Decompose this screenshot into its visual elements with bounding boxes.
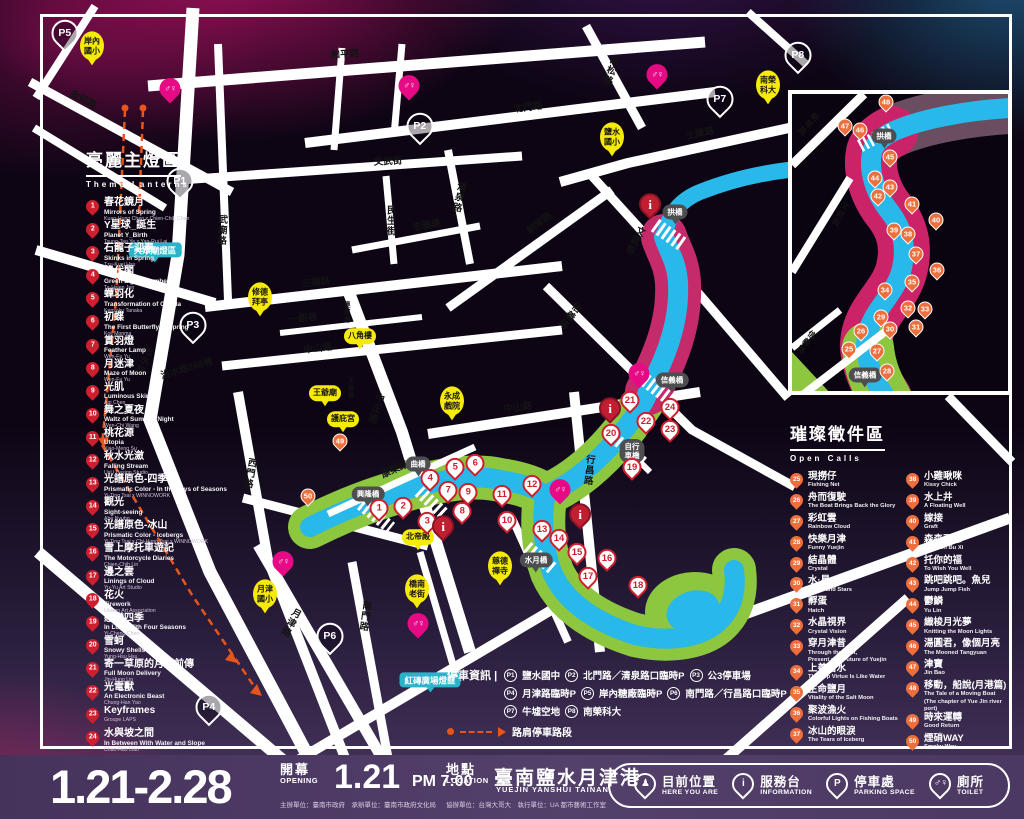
map-pin-lantern-17: 17: [579, 567, 598, 586]
parking-badge-P6: P6: [667, 687, 680, 700]
parking-badge-P7: P7: [504, 705, 517, 718]
theme-item-11: 11桃花源UtopiaXiao-Meng Su: [86, 429, 281, 452]
opencall-item-title-zh: 嫁接: [924, 514, 943, 524]
inset-pin-opencall-46: 46: [853, 123, 868, 138]
theme-item-title-zh: 水與坡之間: [104, 729, 205, 740]
theme-item-pin-icon: 15: [83, 521, 101, 539]
opencall-item-title-en: The Mooned Tangyuan: [924, 650, 1000, 657]
theme-item-title-zh: 石龍子迎春: [104, 244, 154, 255]
theme-item-5: 5蟬羽化Transformation of CicadaKensaku Tana…: [86, 290, 281, 313]
theme-item-title-zh: 光肌: [104, 383, 150, 394]
opencall-item-40: 40嫁接Graft: [906, 514, 1016, 535]
footer-bar: 1.21-2.28 開幕 OPENING 1.21 PM 7:00 地點 LOC…: [0, 755, 1024, 819]
legend-item-parking: P停車處PARKING SPACE: [826, 775, 915, 796]
opencall-item-41: 41森森不息Sen Sen Bu Xi: [906, 535, 1016, 556]
parking-badge-P1: P1: [504, 669, 517, 682]
theme-item-pin-icon: 6: [83, 313, 101, 331]
information-icon-2: i: [599, 397, 621, 419]
inset-pin-opencall-35: 35: [905, 275, 920, 290]
theme-item-title-en: Feather Lamp: [104, 347, 146, 354]
theme-item-pin-icon: 23: [83, 705, 101, 723]
map-pin-parking-P8: P8: [785, 42, 812, 69]
opencall-item-pin-icon: 37: [787, 725, 805, 743]
theme-item-title-en: Sight-seeing: [104, 509, 142, 516]
route-arrow-icon: [498, 727, 506, 737]
opencall-item-37: 37冰山的眼淚The Tears of Iceberg: [790, 727, 900, 748]
parking-location-P6: 南門路／行昌路口臨時P: [685, 686, 786, 700]
parking-badge-P8: P8: [565, 705, 578, 718]
opencall-item-45: 45織梭月光夢Knitting the Moon Lights: [906, 618, 1016, 639]
opencall-item-title-zh: 鬱鱗: [924, 597, 943, 607]
opencall-item-pin-icon: 45: [903, 617, 921, 635]
opencall-item-title-en: Funny Yuejin: [808, 545, 846, 552]
theme-item-title-en: Maze of Moon: [104, 370, 146, 377]
opencall-item-47: 47津寶Jin Bao: [906, 660, 1016, 681]
credits-organizers: 主辦單位：臺南市政府 承辦單位：臺南市政府文化局: [280, 799, 436, 809]
inset-pin-opencall-37: 37: [909, 247, 924, 262]
opencall-item-pin-icon: 50: [903, 732, 921, 750]
map-pin-opencall-50: 50: [301, 489, 316, 504]
theme-item-title-zh: 初蝶: [104, 313, 189, 324]
theme-item-pin-icon: 12: [83, 451, 101, 469]
street-label-王爺巷: 王爺巷: [346, 377, 353, 400]
street-label-文武街: 文武街: [374, 157, 403, 168]
opencall-item-title-en: Hatch: [808, 608, 827, 615]
inset-pin-opencall-36: 36: [930, 263, 945, 278]
opencall-item-title-zh: 托你的福: [924, 556, 972, 566]
opencall-item-title-en: The Boat Brings Back the Glory: [808, 503, 895, 510]
opencall-item-pin-icon: 27: [787, 512, 805, 530]
landmark-label-橋南老街: 橋南 老街: [405, 574, 429, 603]
theme-item-title-en: In Love With Four Seasons: [104, 624, 186, 631]
parking-info-lines: P1鹽水國中P2北門路／清泉路口臨時PP3公3停車場P4月津路臨時PP5岸內糖廠…: [504, 666, 787, 720]
theme-item-20: 20雪蚵Snowy ShellsYung-Hsu Hsu: [86, 637, 281, 660]
theme-item-title-en: Luminous Skin: [104, 393, 150, 400]
inset-bridge-label-信義橋: 信義橋: [849, 368, 882, 383]
opencall-item-title-zh: 上善若水: [808, 664, 885, 674]
theme-item-title-zh: 觀光: [104, 498, 142, 509]
opencall-item-pin-icon: 25: [787, 470, 805, 488]
theme-item-title-zh: 賞羽燈: [104, 337, 146, 348]
theme-item-pin-icon: 8: [83, 359, 101, 377]
bridge-label-信義橋: 信義橋: [656, 373, 689, 388]
legend-label-en: INFORMATION: [760, 789, 812, 796]
theme-item-title-en: Prismatic Color - Icebergs: [104, 532, 208, 539]
opencall-item-title-en: Rainbow Cloud: [808, 524, 850, 531]
parking-icon: P: [822, 768, 853, 799]
opencall-item-title-zh: 時來運轉: [924, 713, 962, 723]
open-calls-inset-map: 朝琴路文武街信義路2526272829303132333435363738394…: [788, 90, 1012, 395]
opencall-item-title-en: Water and Stars: [808, 587, 852, 594]
opencall-item-title-zh: 跳吧跳吧。魚兒: [924, 576, 991, 586]
theme-item-title-en: Skinks in Spring: [104, 255, 154, 262]
inset-pin-opencall-48: 48: [879, 95, 894, 110]
theme-item-pin-icon: 21: [83, 659, 101, 677]
legend-label-zh: 廁所: [957, 775, 984, 789]
theme-item-12: 12秋水光瀲Falling StreamUxU Design Studio: [86, 452, 281, 475]
opencall-item-34: 34上善若水The Top Virtue Is Like Water: [790, 664, 900, 685]
theme-item-pin-icon: 5: [83, 290, 101, 308]
opencall-item-title-en: Knitting the Moon Lights: [924, 629, 992, 636]
opencall-item-title-zh: 聚波漁火: [808, 706, 898, 716]
legend-item-toilet: ♂♀廁所TOILET: [929, 775, 984, 796]
opencall-item-pin-icon: 40: [903, 512, 921, 530]
map-pin-lantern-24: 24: [661, 398, 680, 417]
inset-pin-opencall-38: 38: [901, 227, 916, 242]
map-pin-lantern-12: 12: [523, 475, 542, 494]
information-icon-4: i: [432, 515, 454, 537]
map-pin-lantern-11: 11: [493, 485, 512, 504]
legend-label-en: PARKING SPACE: [854, 789, 915, 796]
bridge-label-拱橋: 拱橋: [663, 205, 688, 220]
opencall-item-pin-icon: 41: [903, 533, 921, 551]
theme-item-title-zh: 光譜原色-四季: [104, 475, 227, 486]
theme-item-title-en: The Motorcycle Diaries: [104, 555, 174, 562]
opencall-item-pin-icon: 46: [903, 637, 921, 655]
theme-item-pin-icon: 14: [83, 498, 101, 516]
theme-item-title-en: Mirrors of Spring: [104, 209, 189, 216]
theme-item-14: 14觀光Sight-seeingAbe Nyubo: [86, 498, 281, 521]
theme-item-title-zh: 舞之夏夜: [104, 406, 174, 417]
map-pin-lantern-9: 9: [459, 483, 478, 502]
theme-item-title-zh: 花火: [104, 591, 156, 602]
street-label-行昌路: 行昌路: [582, 454, 595, 486]
opencall-item-title-zh: 現撈仔: [808, 472, 840, 482]
theme-item-title-en: Planet Y_Birth: [104, 232, 167, 239]
theme-item-1: 1春花鏡月Mirrors of SpringKuan-Hung Chen x C…: [86, 198, 281, 221]
opencall-item-title-zh: 穿月津昔: [808, 639, 887, 649]
theme-item-title-en: Firework: [104, 601, 156, 608]
theme-item-title-en: An Electronic Beast: [104, 693, 164, 700]
map-pin-lantern-5: 5: [446, 458, 465, 477]
opencall-item-pin-icon: 38: [903, 470, 921, 488]
theme-item-title-en: Full Moon Delivery: [104, 670, 194, 677]
theme-item-pin-icon: 19: [83, 613, 101, 631]
map-pin-lantern-20: 20: [602, 424, 621, 443]
theme-item-23: 23KeyframesGroupe LAPS: [86, 706, 281, 729]
opencall-item-title-zh: 小雞啾咪: [924, 472, 962, 482]
opencall-item-30: 30水·星Water and Stars: [790, 576, 900, 597]
theme-item-title-zh: 秋水光瀲: [104, 452, 148, 463]
landmark-label-王爺廟: 王爺廟: [309, 385, 341, 401]
open-calls-title-zh: 璀璨徵件區: [790, 420, 885, 451]
parking-info-label: 停車資訊: [447, 670, 491, 682]
map-legend: ♟目前位置HERE YOU AREi服務台INFORMATIONP停車處PARK…: [608, 763, 1010, 808]
legend-label-zh: 停車處: [854, 775, 915, 789]
inset-pin-opencall-43: 43: [883, 180, 898, 195]
theme-item-15: 15光譜原色-冰山Prismatic Color - IcebergsYi-Ti…: [86, 521, 281, 544]
parking-location-P1: 鹽水國中: [522, 668, 560, 682]
theme-item-pin-icon: 7: [83, 336, 101, 354]
legend-label-en: HERE YOU ARE: [662, 789, 718, 796]
opencall-item-50: 50煙硝WAYSmoky Way: [906, 734, 1016, 755]
opencall-item-title-zh: 孵蛋: [808, 597, 827, 607]
opencall-item-pin-icon: 30: [787, 575, 805, 593]
opencall-item-title-en: Jump Jump Fish: [924, 587, 991, 594]
opencall-item-pin-icon: 36: [787, 704, 805, 722]
map-pin-lantern-19: 19: [623, 458, 642, 477]
landmark-label-南榮科大: 南榮 科大: [756, 70, 780, 99]
theme-item-title-zh: Keyframes: [104, 706, 155, 717]
opencall-item-48: 48移動，船說(月港篇)The Tale of a Moving Boat (T…: [906, 681, 1016, 713]
theme-item-21: 21寄一草原的月亮前傳Full Moon DeliveryJin-Hung Li…: [86, 660, 281, 683]
theme-item-pin-icon: 20: [83, 636, 101, 654]
opencall-item-35: 35生命鹽月Vitality of the Salt Moon: [790, 685, 900, 706]
opencall-item-title-en: The Tears of Iceberg: [808, 737, 864, 744]
parking-badge-P2: P2: [565, 669, 578, 682]
opencall-item-pin-icon: 42: [903, 554, 921, 572]
inset-bridge-label-拱橋: 拱橋: [872, 129, 897, 144]
route-dash-icon: [460, 731, 492, 733]
theme-item-2: 2Y星球_誕生Planet Y_BirthTsung-Tao Ye x Yan-…: [86, 221, 281, 244]
opencall-item-title-en: Sen Sen Bu Xi: [924, 545, 963, 552]
inset-pin-opencall-25: 25: [842, 342, 857, 357]
parking-location-P4: 月津路臨時P: [522, 686, 576, 700]
route-dot-icon: [447, 728, 454, 735]
toilet-icon-7: ♂♀: [408, 613, 429, 634]
opencall-item-44: 44鬱鱗Yu Lin: [906, 597, 1016, 618]
opencall-item-pin-icon: 44: [903, 596, 921, 614]
toilet-icon-1: ♂♀: [160, 78, 181, 99]
legend-label-en: TOILET: [957, 789, 984, 796]
theme-item-pin-icon: 2: [83, 220, 101, 238]
opencall-item-title-en: Vitality of the Salt Moon: [808, 695, 874, 702]
theme-item-10: 10舞之夏夜Waltz of Summer NightWen-Chi Wang: [86, 406, 281, 429]
toilet-icon-3: ♂♀: [647, 64, 668, 85]
opencall-item-title-en: Jin Bao: [924, 670, 945, 677]
opencall-item-title-en: Colorful Lights on Fishing Boats: [808, 716, 898, 723]
theme-item-pin-icon: 17: [83, 567, 101, 585]
opencall-item-title-en: Crystal Vision: [808, 629, 847, 636]
inset-pin-opencall-26: 26: [854, 324, 869, 339]
open-calls-panel: 璀璨徵件區 Open Calls 25現撈仔Fishing Net26舟而復駛T…: [790, 420, 1016, 755]
opencall-item-title-en: Smoky Way: [924, 744, 964, 751]
opencall-item-pin-icon: 39: [903, 491, 921, 509]
parking-location-P7: 牛墟空地: [522, 704, 560, 718]
parking-location-P8: 南榮科大: [583, 704, 621, 718]
theme-item-pin-icon: 16: [83, 544, 101, 562]
location-label: 地點 LOCATION: [446, 763, 489, 786]
parking-badge-P4: P4: [504, 687, 517, 700]
map-pin-lantern-22: 22: [637, 412, 656, 431]
opencall-item-26: 26舟而復駛The Boat Brings Back the Glory: [790, 493, 900, 514]
opencall-item-title-zh: 水晶視界: [808, 618, 847, 628]
theme-item-title-en: Prismatic Color - In the Days of Seasons: [104, 486, 227, 493]
opencall-item-pin-icon: 35: [787, 683, 805, 701]
opencall-item-title-en: Kissy Chick: [924, 482, 962, 489]
inset-pin-opencall-34: 34: [878, 283, 893, 298]
theme-item-title-zh: 綠代閣: [104, 267, 169, 278]
opencall-item-title-en: The Top Virtue Is Like Water: [808, 674, 885, 681]
landmark-label-八角樓: 八角樓: [344, 328, 376, 344]
theme-item-title-zh: 春花鏡月: [104, 198, 189, 209]
opencall-item-title-zh: 舟而復駛: [808, 493, 895, 503]
opencall-item-38: 38小雞啾咪Kissy Chick: [906, 472, 1016, 493]
theme-item-title-en: Green Light Chamber: [104, 278, 169, 285]
legend-label-zh: 服務台: [760, 775, 812, 789]
opencall-item-title-en: Crystal: [808, 566, 837, 573]
person-icon: ♟: [629, 768, 660, 799]
theme-item-3: 3石龍子迎春Skinks in SpringTzu-Kuei Hsu: [86, 244, 281, 267]
opencall-item-title-zh: 移動，船說(月港篇): [924, 681, 1016, 691]
opencall-item-title-zh: 水·星: [808, 576, 852, 586]
theme-item-title-zh: 月迷津: [104, 360, 146, 371]
opencall-item-title-en: Fishing Net: [808, 482, 840, 489]
opencall-item-title-en: Through the Past, Present and Future of …: [808, 650, 887, 664]
theme-item-7: 7賞羽燈Feather LampWen-Fu Yu: [86, 337, 281, 360]
theme-item-pin-icon: 24: [83, 728, 101, 746]
opencall-item-title-zh: 水上井: [924, 493, 966, 503]
parking-badge-P5: P5: [581, 687, 594, 700]
information-icon-1: i: [639, 193, 661, 215]
legend-item-person: ♟目前位置HERE YOU ARE: [634, 775, 718, 796]
information-icon-3: i: [569, 503, 591, 525]
festival-map-poster: 金和路和平路北門路高松路土庫路文武街武廟路民生街忠義路清泉路朝琴路文武街三福路一…: [0, 0, 1024, 819]
inset-pin-opencall-28: 28: [880, 364, 895, 379]
opencall-item-title-zh: 煙硝WAY: [924, 734, 964, 744]
opencall-item-pin-icon: 33: [787, 637, 805, 655]
theme-item-title-zh: 雪蚵: [104, 637, 145, 648]
theme-item-pin-icon: 22: [83, 682, 101, 700]
theme-item-title-en: Utopia: [104, 439, 137, 446]
street-label-連成巷: 連成巷: [342, 301, 349, 324]
inset-pin-opencall-40: 40: [929, 213, 944, 228]
map-pin-lantern-4: 4: [421, 469, 440, 488]
street-label-民生街: 民生街: [385, 205, 395, 237]
theme-item-pin-icon: 13: [83, 474, 101, 492]
landmark-label-鹽水國小: 鹽水 國小: [600, 122, 624, 151]
opening-date: 1.21: [334, 758, 400, 797]
inset-pin-opencall-30: 30: [883, 322, 898, 337]
toilet-icon-5: ♂♀: [550, 479, 571, 500]
bridge-label-水月橋: 水月橋: [520, 553, 553, 568]
parking-info-line-1: P1鹽水國中P2北門路／清泉路口臨時PP3公3停車場: [504, 666, 787, 684]
theme-item-title-zh: 桃花源: [104, 429, 137, 440]
theme-item-pin-icon: 1: [83, 197, 101, 215]
info-icon: i: [728, 768, 759, 799]
theme-item-4: 4綠代閣Green Light ChamberTa-Hsien Jen: [86, 267, 281, 290]
opencall-item-31: 31孵蛋Hatch: [790, 597, 900, 618]
theme-lanterns-panel: 亮麗主燈區 Theme Lanterns 1春花鏡月Mirrors of Spr…: [86, 146, 281, 752]
map-pin-lantern-23: 23: [661, 420, 680, 439]
theme-item-17: 17邊之雲Linings of CloudYu-Yu Art Studio: [86, 568, 281, 591]
map-pin-lantern-7: 7: [439, 481, 458, 500]
opencall-item-title-zh: 津寶: [924, 660, 945, 670]
opencall-item-title-zh: 生命鹽月: [808, 685, 874, 695]
opencall-item-39: 39水上井A Floating Well: [906, 493, 1016, 514]
opencall-item-title-en: Good Return: [924, 723, 962, 730]
map-pin-lantern-18: 18: [629, 576, 648, 595]
location-name-en: YUEJIN YANSHUI TAINAN: [496, 785, 609, 794]
inset-river-graphic: [792, 94, 1008, 391]
theme-item-title-en: Transformation of Cicada: [104, 301, 181, 308]
parking-info-line-2: P4月津路臨時PP5岸內糖廠臨時PP6南門路／行昌路口臨時P: [504, 684, 787, 702]
map-pin-lantern-10: 10: [498, 511, 517, 530]
opencall-item-title-en: The Tale of a Moving Boat (The chapter o…: [924, 691, 1016, 713]
map-pin-lantern-21: 21: [621, 391, 640, 410]
map-pin-opencall-49: 49: [333, 434, 348, 449]
inset-pin-opencall-45: 45: [883, 150, 898, 165]
opencall-item-title-zh: 結晶體: [808, 556, 837, 566]
parking-info-line-3: P7牛墟空地P8南榮科大: [504, 702, 787, 720]
inset-pin-opencall-33: 33: [918, 302, 933, 317]
parking-location-P5: 岸內糖廠臨時P: [599, 686, 662, 700]
inset-pin-opencall-47: 47: [838, 119, 853, 134]
toilet-icon-2: ♂♀: [399, 75, 420, 96]
theme-panel-title-zh: 亮麗主燈區: [86, 146, 181, 177]
opencall-item-25: 25現撈仔Fishing Net: [790, 472, 900, 493]
opencall-item-43: 43跳吧跳吧。魚兒Jump Jump Fish: [906, 576, 1016, 597]
theme-item-title-zh: 光譜原色-冰山: [104, 521, 208, 532]
theme-item-pin-icon: 3: [83, 243, 101, 261]
theme-item-artist: Chao-Hao Liao: [104, 747, 205, 753]
opencall-item-pin-icon: 28: [787, 533, 805, 551]
legend-label-zh: 目前位置: [662, 775, 718, 789]
open-calls-list: 25現撈仔Fishing Net26舟而復駛The Boat Brings Ba…: [790, 472, 1016, 755]
parking-location-P2: 北門路／清泉路口臨時P: [583, 668, 684, 682]
opencall-item-title-en: Yu Lin: [924, 608, 943, 615]
open-calls-title-en: Open Calls: [790, 454, 1016, 463]
landmark-label-永成戲院: 永成 戲院: [440, 386, 464, 415]
opencall-item-pin-icon: 43: [903, 575, 921, 593]
theme-item-title-en: The First Butterfly in Spring: [104, 324, 189, 331]
opencall-item-pin-icon: 34: [787, 662, 805, 680]
inset-pin-opencall-44: 44: [868, 171, 883, 186]
inset-pin-opencall-31: 31: [909, 320, 924, 335]
theme-item-13: 13光譜原色-四季Prismatic Color - In the Days o…: [86, 475, 281, 498]
toilet-icon: ♂♀: [924, 768, 955, 799]
inset-pin-opencall-41: 41: [905, 197, 920, 212]
opencall-item-title-zh: 森森不息: [924, 535, 963, 545]
opencall-item-pin-icon: 31: [787, 596, 805, 614]
theme-item-pin-icon: 9: [83, 382, 101, 400]
theme-item-18: 18花火FireworkUnison Art Association: [86, 591, 281, 614]
roadside-parking-label: 路肩停車路段: [512, 724, 572, 739]
opencall-item-title-zh: 快樂月津: [808, 535, 846, 545]
map-pin-lantern-15: 15: [568, 543, 587, 562]
street-label-和平路: 和平路: [330, 49, 359, 60]
inset-pin-opencall-32: 32: [901, 301, 916, 316]
opencall-item-46: 46湯圓君，像個月亮The Mooned Tangyuan: [906, 639, 1016, 660]
theme-item-pin-icon: 4: [83, 267, 101, 285]
theme-item-artist: Groupe LAPS: [104, 717, 155, 723]
map-pin-parking-P6: P6: [317, 623, 344, 650]
opencall-item-42: 42托你的福To Wish You Well: [906, 556, 1016, 577]
theme-item-title-zh: 邊之雲: [104, 568, 154, 579]
opencall-item-29: 29結晶體Crystal: [790, 556, 900, 577]
theme-item-6: 6初蝶The First Butterfly in SpringKoji Mon…: [86, 313, 281, 336]
credits-partners: 協辦單位：台灣大哥大 執行單位：UA 都市藝術工作室: [446, 799, 606, 809]
opencall-item-27: 27彩虹雲Rainbow Cloud: [790, 514, 900, 535]
opencall-item-title-en: A Floating Well: [924, 503, 966, 510]
opencall-item-pin-icon: 32: [787, 617, 805, 635]
opencall-item-pin-icon: 29: [787, 554, 805, 572]
theme-item-title-en: Waltz of Summer Night: [104, 416, 174, 423]
map-pin-parking-P5: P5: [52, 20, 79, 47]
theme-item-pin-icon: 11: [83, 428, 101, 446]
opencall-item-36: 36聚波漁火Colorful Lights on Fishing Boats: [790, 706, 900, 727]
theme-item-16: 16雪上摩托車遊記The Motorcycle DiariesChien-Chi…: [86, 544, 281, 567]
map-pin-lantern-16: 16: [598, 549, 617, 568]
map-pin-lantern-1: 1: [370, 499, 389, 518]
theme-item-19: 19戀戀四季In Love With Four SeasonsYi-Cheng …: [86, 614, 281, 637]
theme-item-title-zh: Y星球_誕生: [104, 221, 167, 232]
theme-item-title-zh: 光電獸: [104, 683, 164, 694]
theme-item-title-en: Falling Stream: [104, 463, 148, 470]
theme-item-title-zh: 雪上摩托車遊記: [104, 544, 174, 555]
opencall-item-49: 49時來運轉Good Return: [906, 713, 1016, 734]
map-pin-parking-P2: P2: [407, 113, 434, 140]
